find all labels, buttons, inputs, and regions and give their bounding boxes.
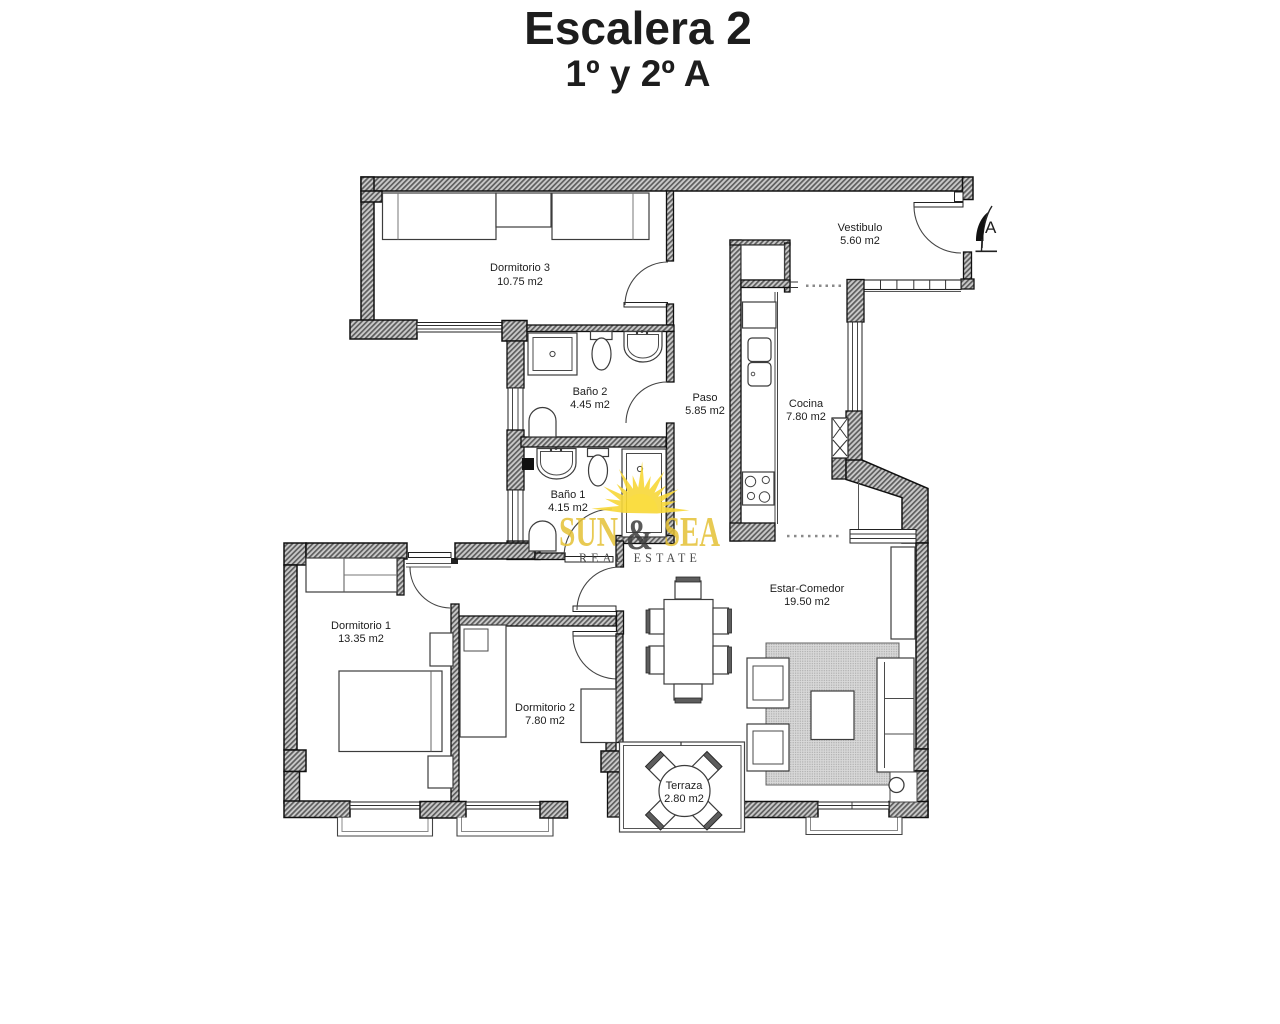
- svg-text:2.80 m2: 2.80 m2: [664, 793, 704, 805]
- svg-text:1º y 2º A: 1º y 2º A: [566, 53, 711, 94]
- svg-text:Cocina: Cocina: [789, 398, 824, 410]
- svg-text:Vestibulo: Vestibulo: [838, 222, 883, 234]
- svg-text:5.85 m2: 5.85 m2: [685, 405, 725, 417]
- svg-text:Escalera 2: Escalera 2: [524, 2, 752, 54]
- svg-text:7.80 m2: 7.80 m2: [525, 715, 565, 727]
- svg-text:REAL ESTATE: REAL ESTATE: [579, 550, 701, 565]
- svg-text:Baño 2: Baño 2: [573, 386, 608, 398]
- svg-text:Estar-Comedor: Estar-Comedor: [770, 583, 845, 595]
- svg-text:Baño 1: Baño 1: [551, 489, 586, 501]
- svg-text:4.45 m2: 4.45 m2: [570, 399, 610, 411]
- svg-text:10.75 m2: 10.75 m2: [497, 276, 543, 288]
- svg-text:Dormitorio 3: Dormitorio 3: [490, 262, 550, 274]
- svg-text:7.80 m2: 7.80 m2: [786, 411, 826, 423]
- svg-text:19.50 m2: 19.50 m2: [784, 596, 830, 608]
- svg-text:Terraza: Terraza: [666, 780, 704, 792]
- svg-text:5.60 m2: 5.60 m2: [840, 235, 880, 247]
- svg-text:Dormitorio 2: Dormitorio 2: [515, 702, 575, 714]
- svg-text:13.35 m2: 13.35 m2: [338, 633, 384, 645]
- svg-text:A: A: [985, 218, 997, 237]
- svg-text:Paso: Paso: [692, 392, 717, 404]
- svg-text:Dormitorio 1: Dormitorio 1: [331, 620, 391, 632]
